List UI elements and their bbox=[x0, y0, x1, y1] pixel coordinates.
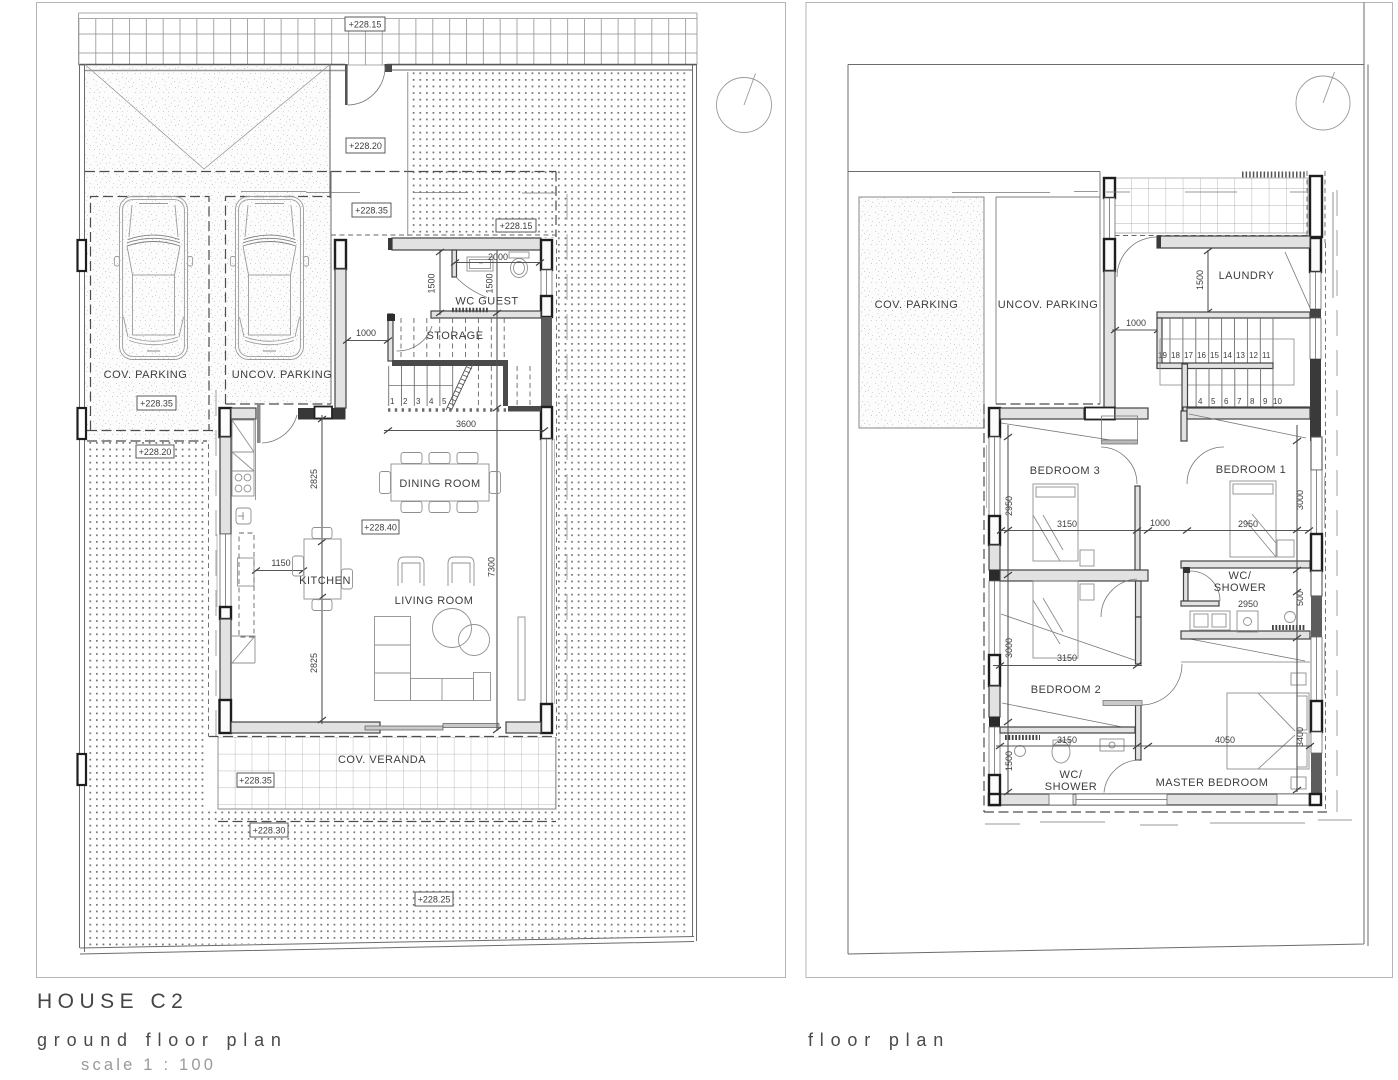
svg-text:+228.35: +228.35 bbox=[355, 206, 388, 216]
svg-text:+228.15: +228.15 bbox=[500, 221, 533, 231]
svg-text:+228.35: +228.35 bbox=[140, 399, 173, 409]
svg-text:BEDROOM 2: BEDROOM 2 bbox=[1031, 684, 1102, 696]
svg-text:+228.15: +228.15 bbox=[349, 20, 382, 30]
svg-text:1000: 1000 bbox=[1126, 318, 1146, 328]
svg-text:3150: 3150 bbox=[1057, 519, 1077, 529]
svg-text:3600: 3600 bbox=[456, 419, 476, 429]
svg-text:+228.40: +228.40 bbox=[364, 523, 397, 533]
svg-text:7: 7 bbox=[1237, 397, 1242, 406]
svg-text:UNCOV. PARKING: UNCOV. PARKING bbox=[998, 299, 1099, 311]
svg-text:18: 18 bbox=[1171, 351, 1180, 360]
svg-text:STORAGE: STORAGE bbox=[426, 330, 483, 342]
svg-text:11: 11 bbox=[1262, 351, 1271, 360]
svg-text:LAUNDRY: LAUNDRY bbox=[1219, 270, 1275, 282]
svg-text:13: 13 bbox=[1236, 351, 1245, 360]
svg-text:2825: 2825 bbox=[309, 653, 319, 673]
svg-text:+228.20: +228.20 bbox=[139, 447, 172, 457]
svg-text:scale 1 : 100: scale 1 : 100 bbox=[81, 1056, 216, 1074]
svg-text:2950: 2950 bbox=[1004, 496, 1014, 516]
svg-text:3150: 3150 bbox=[1057, 735, 1077, 745]
svg-text:1500: 1500 bbox=[1004, 751, 1014, 771]
svg-text:DINING ROOM: DINING ROOM bbox=[399, 478, 480, 490]
svg-text:1000: 1000 bbox=[1150, 518, 1170, 528]
svg-text:HOUSE C2: HOUSE C2 bbox=[37, 990, 188, 1013]
svg-text:2000: 2000 bbox=[488, 252, 508, 262]
svg-text:COV. PARKING: COV. PARKING bbox=[875, 299, 959, 311]
svg-text:+228.35: +228.35 bbox=[239, 776, 272, 786]
svg-text:2825: 2825 bbox=[309, 469, 319, 489]
svg-text:1500: 1500 bbox=[427, 273, 437, 293]
svg-text:7300: 7300 bbox=[487, 557, 497, 577]
svg-text:UNCOV. PARKING: UNCOV. PARKING bbox=[232, 369, 333, 381]
svg-text:19: 19 bbox=[1158, 351, 1167, 360]
svg-text:1: 1 bbox=[390, 397, 395, 406]
svg-text:1500: 1500 bbox=[485, 273, 495, 293]
svg-text:2: 2 bbox=[403, 397, 408, 406]
svg-text:floor plan: floor plan bbox=[808, 1030, 950, 1050]
svg-text:3150: 3150 bbox=[1057, 653, 1077, 663]
svg-text:BEDROOM 3: BEDROOM 3 bbox=[1030, 465, 1101, 477]
svg-text:1150: 1150 bbox=[271, 558, 290, 568]
svg-text:5: 5 bbox=[442, 397, 447, 406]
svg-text:1000: 1000 bbox=[356, 328, 376, 338]
svg-text:6: 6 bbox=[1224, 397, 1229, 406]
svg-text:MASTER BEDROOM: MASTER BEDROOM bbox=[1156, 777, 1269, 789]
svg-text:3000: 3000 bbox=[1295, 490, 1305, 510]
svg-text:2950: 2950 bbox=[1238, 519, 1258, 529]
svg-text:ground floor plan: ground floor plan bbox=[37, 1030, 288, 1050]
svg-text:9: 9 bbox=[1263, 397, 1268, 406]
svg-text:1500: 1500 bbox=[1195, 270, 1205, 290]
svg-text:WC GUEST: WC GUEST bbox=[455, 296, 518, 308]
svg-text:LIVING ROOM: LIVING ROOM bbox=[395, 595, 474, 607]
svg-text:3: 3 bbox=[416, 397, 421, 406]
svg-text:SHOWER: SHOWER bbox=[1214, 582, 1267, 594]
svg-text:+228.20: +228.20 bbox=[349, 141, 382, 151]
svg-text:4: 4 bbox=[429, 397, 434, 406]
svg-text:10: 10 bbox=[1273, 397, 1282, 406]
svg-text:17: 17 bbox=[1184, 351, 1193, 360]
svg-text:WC/: WC/ bbox=[1229, 570, 1252, 582]
svg-text:2950: 2950 bbox=[1238, 599, 1258, 609]
svg-text:WC/: WC/ bbox=[1060, 769, 1083, 781]
svg-text:8: 8 bbox=[1250, 397, 1255, 406]
svg-text:3000: 3000 bbox=[1004, 638, 1014, 658]
svg-text:+228.25: +228.25 bbox=[418, 895, 451, 905]
svg-text:BEDROOM 1: BEDROOM 1 bbox=[1216, 464, 1287, 476]
svg-text:16: 16 bbox=[1197, 351, 1206, 360]
svg-text:3400: 3400 bbox=[1295, 727, 1305, 747]
svg-text:15: 15 bbox=[1210, 351, 1219, 360]
svg-text:KITCHEN: KITCHEN bbox=[299, 575, 351, 587]
svg-text:500: 500 bbox=[1295, 591, 1305, 606]
svg-text:14: 14 bbox=[1223, 351, 1232, 360]
svg-text:4: 4 bbox=[1198, 397, 1203, 406]
svg-text:+228.30: +228.30 bbox=[253, 826, 286, 836]
svg-text:5: 5 bbox=[1211, 397, 1216, 406]
svg-text:COV. PARKING: COV. PARKING bbox=[104, 369, 188, 381]
svg-text:COV. VERANDA: COV. VERANDA bbox=[338, 754, 426, 766]
svg-text:SHOWER: SHOWER bbox=[1045, 781, 1098, 793]
svg-text:4050: 4050 bbox=[1215, 735, 1235, 745]
svg-text:12: 12 bbox=[1249, 351, 1258, 360]
